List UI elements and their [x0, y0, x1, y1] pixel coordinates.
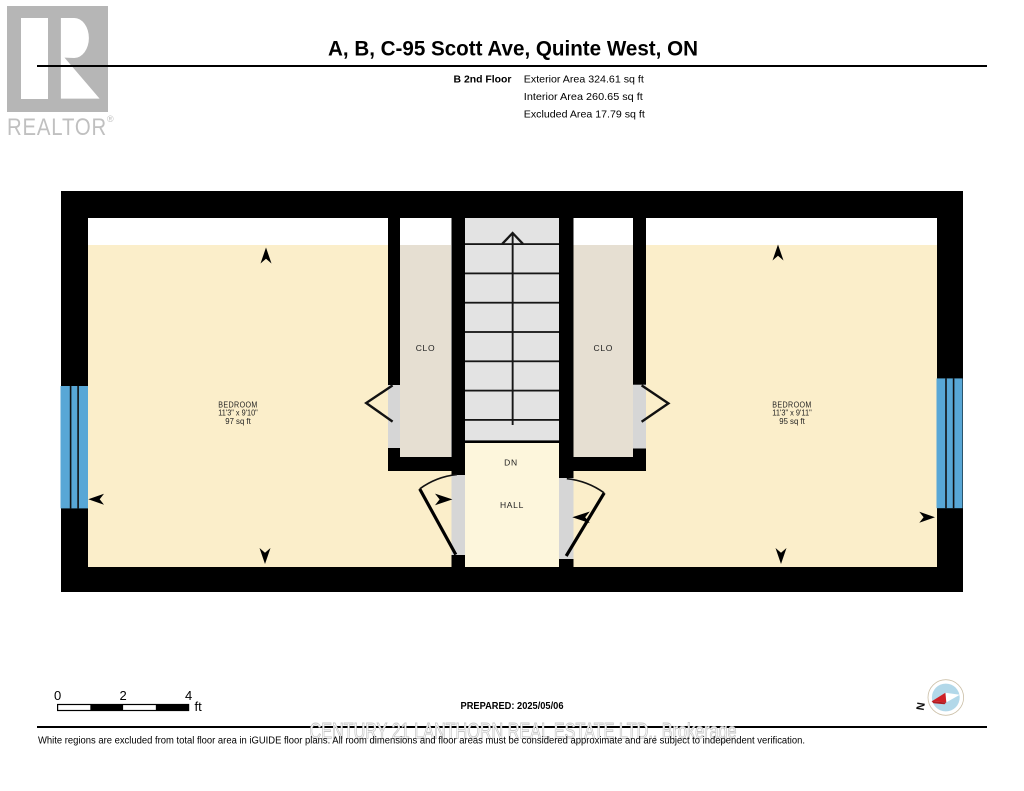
svg-text:White regions are excluded fro: White regions are excluded from total fl…	[38, 736, 805, 747]
svg-text:95 sq ft: 95 sq ft	[779, 417, 805, 426]
svg-text:A, B, C-95 Scott Ave, Quinte W: A, B, C-95 Scott Ave, Quinte West, ON	[328, 37, 698, 61]
svg-text:4: 4	[185, 688, 192, 703]
svg-text:ft: ft	[195, 699, 203, 714]
svg-text:HALL: HALL	[500, 500, 524, 510]
svg-text:Excluded Area 17.79 sq ft: Excluded Area 17.79 sq ft	[524, 109, 645, 121]
svg-text:97 sq ft: 97 sq ft	[225, 417, 251, 426]
svg-text:0: 0	[54, 688, 61, 703]
svg-text:REALTOR: REALTOR	[7, 114, 107, 141]
svg-text:B 2nd Floor: B 2nd Floor	[454, 74, 512, 86]
svg-text:Exterior Area 324.61 sq ft: Exterior Area 324.61 sq ft	[524, 74, 644, 86]
svg-text:CLO: CLO	[594, 343, 614, 353]
svg-text:Interior Area 260.65 sq ft: Interior Area 260.65 sq ft	[524, 91, 643, 103]
svg-text:CLO: CLO	[416, 343, 436, 353]
svg-text:DN: DN	[504, 457, 518, 467]
svg-text:PREPARED: 2025/05/06: PREPARED: 2025/05/06	[461, 701, 564, 712]
svg-text:®: ®	[107, 114, 114, 124]
svg-text:2: 2	[119, 688, 126, 703]
